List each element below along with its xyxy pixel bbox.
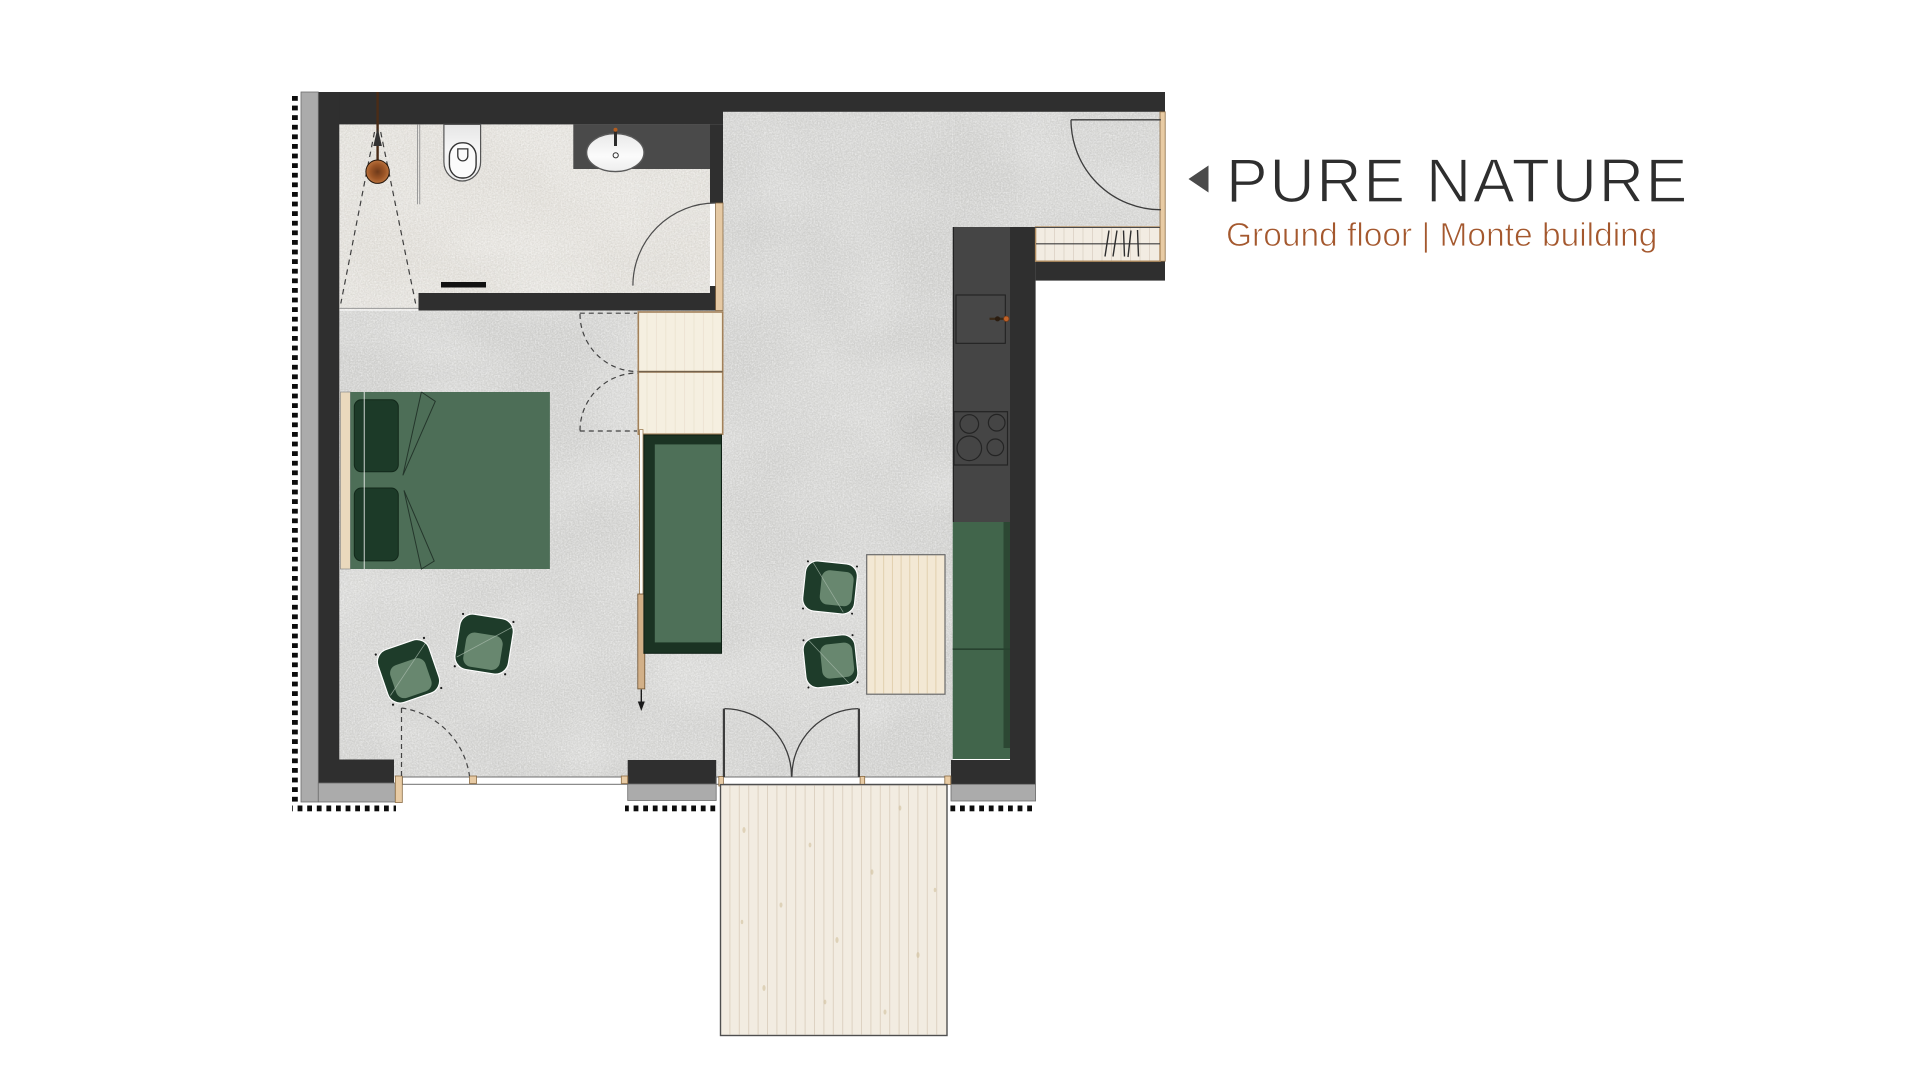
svg-text:Ground floor | Monte building: Ground floor | Monte building <box>1226 217 1657 254</box>
svg-text:PURE NATURE: PURE NATURE <box>1226 146 1689 216</box>
